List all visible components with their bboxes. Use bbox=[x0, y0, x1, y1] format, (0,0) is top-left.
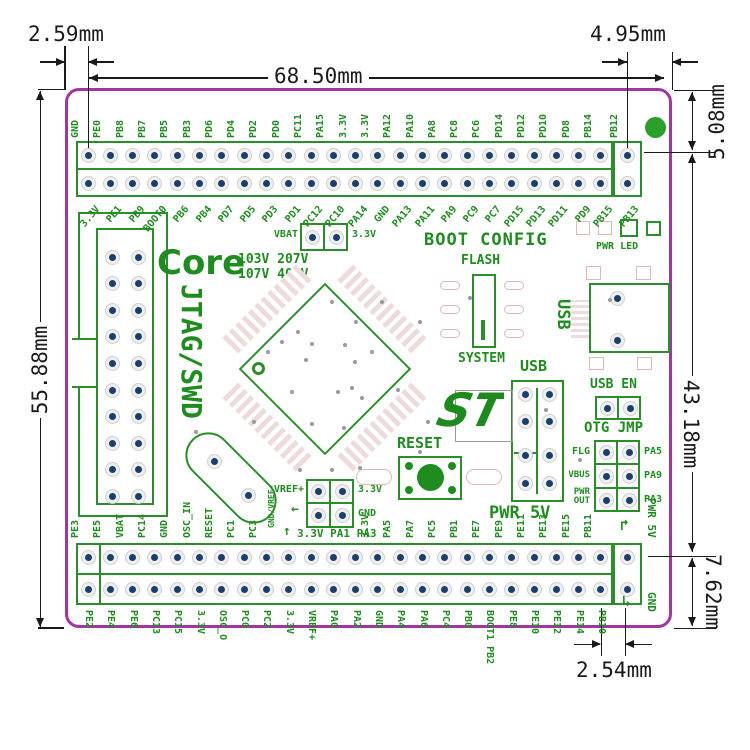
pin-label: GND bbox=[70, 90, 82, 138]
top-header-pin bbox=[437, 176, 452, 191]
pin-label: PE15 bbox=[561, 490, 573, 538]
vref-pin bbox=[311, 508, 326, 523]
bottom-header-pin bbox=[593, 582, 608, 597]
pin-label: PC13 bbox=[149, 610, 161, 666]
pin-label: PD2 bbox=[248, 90, 260, 138]
pin-label: 3.3V bbox=[283, 610, 295, 666]
otg-pin bbox=[599, 493, 614, 508]
pin-label: PB11 bbox=[583, 490, 595, 538]
bottom-header-pin bbox=[192, 582, 207, 597]
usb-header-pin bbox=[518, 414, 533, 429]
jtag-pin bbox=[131, 356, 146, 371]
arrowhead bbox=[625, 640, 634, 648]
usb-port-outline bbox=[589, 283, 670, 353]
pin-label: PC11 bbox=[293, 90, 305, 138]
pin-label: PD10 bbox=[538, 90, 550, 138]
gnd-out-label: GND bbox=[646, 592, 657, 622]
pin-label: PA10 bbox=[405, 90, 417, 138]
dim-right-gap-label: 4.95mm bbox=[590, 22, 666, 46]
top-header-pin bbox=[460, 148, 475, 163]
top-header-pin bbox=[259, 176, 274, 191]
bottom-header-pin bbox=[527, 550, 542, 565]
pin-label: PA12 bbox=[382, 90, 394, 138]
top-header-pin bbox=[482, 148, 497, 163]
usb-pad bbox=[636, 266, 651, 280]
pin-label: PB5 bbox=[159, 90, 171, 138]
arrowhead bbox=[36, 618, 44, 627]
dim-board-height-label: 55.88mm bbox=[28, 322, 50, 418]
bottom-header-pin bbox=[348, 582, 363, 597]
arrowhead bbox=[618, 58, 627, 66]
dim-header-span-label: 43.18mm bbox=[681, 376, 703, 472]
pin-label: PC6 bbox=[471, 90, 483, 138]
pin-label: PD8 bbox=[561, 90, 573, 138]
usb-header-pin bbox=[542, 414, 557, 429]
jtag-pin bbox=[131, 383, 146, 398]
pin-label: BOOT1 PB2 bbox=[483, 610, 495, 666]
dim-line bbox=[692, 558, 694, 626]
jtag-pin bbox=[105, 409, 120, 424]
bottom-header-pin bbox=[237, 582, 252, 597]
usb-header-pin bbox=[518, 387, 533, 402]
via-dot bbox=[304, 358, 308, 362]
via-dot bbox=[418, 450, 422, 454]
bottom-header-pin bbox=[125, 582, 140, 597]
usb-pad bbox=[586, 266, 601, 280]
pin-label: PA8 bbox=[427, 90, 439, 138]
otg-pin bbox=[599, 469, 614, 484]
bottom-header-midline bbox=[76, 573, 613, 575]
usb-en-pin bbox=[623, 401, 638, 416]
bottom-header-pin bbox=[620, 582, 635, 597]
top-header-pin bbox=[348, 176, 363, 191]
usb-header-pin bbox=[542, 387, 557, 402]
bottom-header-pin bbox=[393, 582, 408, 597]
top-header-pin bbox=[527, 148, 542, 163]
bottom-header-pin bbox=[527, 582, 542, 597]
top-header-pin bbox=[370, 176, 385, 191]
via-dot bbox=[194, 430, 198, 434]
usb-header-pin bbox=[518, 448, 533, 463]
bottom-header-pin bbox=[81, 582, 96, 597]
boot-flash-label: FLASH bbox=[461, 254, 500, 268]
bottom-header-pin bbox=[125, 550, 140, 565]
jtag-pin bbox=[105, 329, 120, 344]
pin-label: PE13 bbox=[538, 490, 550, 538]
jtag-pin bbox=[105, 303, 120, 318]
pin-label: PA2 bbox=[350, 610, 362, 666]
dim-top-margin-label: 5.08mm bbox=[705, 80, 727, 164]
bottom-header-pin bbox=[504, 582, 519, 597]
top-header-pin bbox=[147, 176, 162, 191]
jtag-pin bbox=[131, 462, 146, 477]
pin-label: PE9 bbox=[494, 490, 506, 538]
otg-divider bbox=[616, 440, 618, 512]
jtag-pin bbox=[105, 250, 120, 265]
via-dot bbox=[418, 320, 422, 324]
top-header-pin bbox=[81, 176, 96, 191]
bottom-header-pin bbox=[281, 550, 296, 565]
arrowhead bbox=[56, 58, 65, 66]
pin-label: PB10 bbox=[595, 610, 607, 666]
bottom-header-pin bbox=[593, 550, 608, 565]
top-header-pin bbox=[504, 176, 519, 191]
via-dot bbox=[310, 422, 314, 426]
pin-label: RESET bbox=[204, 490, 216, 538]
dim-pin-span-label: 68.50mm bbox=[268, 64, 369, 88]
st-logo-icon: ST bbox=[428, 380, 504, 442]
pwr5v-out-label: PWR 5V bbox=[646, 498, 657, 544]
top-header-pin bbox=[147, 148, 162, 163]
usb-port-pin bbox=[610, 291, 625, 306]
top-header-pin bbox=[571, 148, 586, 163]
top-header-pin bbox=[326, 148, 341, 163]
pin-label: OSC_O bbox=[216, 610, 228, 666]
arrowhead bbox=[688, 617, 696, 626]
via-dot bbox=[468, 296, 472, 300]
pin-label: PE2 bbox=[82, 610, 94, 666]
via-dot bbox=[544, 408, 548, 412]
bottom-header-pin bbox=[147, 582, 162, 597]
usb-en-label: USB EN bbox=[590, 378, 637, 392]
usb-header-pin bbox=[542, 476, 557, 491]
dim-pin-pitch-label: 2.54mm bbox=[576, 658, 652, 682]
via-dot bbox=[426, 420, 430, 424]
arrowhead bbox=[688, 543, 696, 552]
via-dot bbox=[266, 350, 270, 354]
via-dot bbox=[298, 468, 302, 472]
pin-label: PD0 bbox=[271, 90, 283, 138]
bottom-header-pin bbox=[348, 550, 363, 565]
usb-header-trace-v bbox=[536, 388, 538, 494]
ext-line bbox=[38, 627, 64, 629]
pin-label: PE4 bbox=[104, 610, 116, 666]
jtag-pin bbox=[105, 276, 120, 291]
pin-label: OSC_IN bbox=[182, 490, 194, 538]
boot-switch-mark bbox=[481, 320, 485, 340]
pin-label: PE11 bbox=[516, 490, 528, 538]
pin-label: PE0 bbox=[92, 90, 104, 138]
pin-label: PE5 bbox=[92, 490, 104, 538]
jtag-pin bbox=[131, 250, 146, 265]
arrowhead bbox=[688, 558, 696, 567]
top-header-pin bbox=[103, 176, 118, 191]
via-dot bbox=[342, 426, 346, 430]
reset-corner-pin bbox=[405, 462, 413, 470]
vbat-pin bbox=[305, 230, 320, 245]
reset-pad bbox=[356, 469, 392, 485]
reset-pad bbox=[466, 469, 502, 485]
pin-label: VREF+ bbox=[305, 610, 317, 666]
top-header-pin bbox=[549, 176, 564, 191]
pin-label: PB0 bbox=[461, 610, 473, 666]
top-header-pin bbox=[237, 176, 252, 191]
bottom-header-pin bbox=[281, 582, 296, 597]
arrowhead bbox=[688, 154, 696, 163]
via-dot bbox=[336, 390, 340, 394]
bottom-header-pin bbox=[571, 550, 586, 565]
bottom-header-pin bbox=[259, 550, 274, 565]
vref-pin bbox=[335, 484, 350, 499]
bottom-header-pin bbox=[192, 550, 207, 565]
top-header-pin bbox=[170, 176, 185, 191]
pin-label: GND bbox=[372, 610, 384, 666]
top-header-pin bbox=[437, 148, 452, 163]
via-dot bbox=[353, 360, 357, 364]
top-header-pin bbox=[370, 148, 385, 163]
via-dot bbox=[310, 342, 314, 346]
pin-label: PC2 bbox=[260, 610, 272, 666]
pin-label: 3.3V bbox=[338, 90, 350, 138]
top-header-pin bbox=[125, 148, 140, 163]
bottom-header-pin bbox=[170, 582, 185, 597]
usb-pad bbox=[589, 357, 604, 370]
top-header-pin bbox=[415, 148, 430, 163]
arrowhead bbox=[688, 92, 696, 101]
bottom-header-pin bbox=[103, 582, 118, 597]
pin-label: PC5 bbox=[427, 490, 439, 538]
arrowhead bbox=[36, 91, 44, 100]
top-header-pin bbox=[192, 148, 207, 163]
otg-pin bbox=[599, 445, 614, 460]
top-header-pin bbox=[304, 176, 319, 191]
jtag-pin bbox=[105, 436, 120, 451]
top-header-pin bbox=[192, 176, 207, 191]
top-header-pin bbox=[393, 176, 408, 191]
via-dot bbox=[350, 386, 354, 390]
otg-jmp-title: OTG JMP bbox=[584, 421, 643, 436]
usb-port-pin bbox=[610, 333, 625, 348]
via-dot bbox=[330, 300, 334, 304]
usb-header-pin bbox=[542, 448, 557, 463]
via-dot bbox=[578, 458, 582, 462]
jtag-pin bbox=[105, 489, 120, 504]
arrowhead bbox=[688, 141, 696, 150]
crystal-pin bbox=[207, 454, 222, 469]
top-header-pin bbox=[281, 148, 296, 163]
via-dot bbox=[343, 343, 347, 347]
vref-pin bbox=[311, 484, 326, 499]
pin-label: PA6 bbox=[417, 610, 429, 666]
pin-label: PB1 bbox=[449, 490, 461, 538]
vref-pin bbox=[335, 508, 350, 523]
bottom-header-pin bbox=[103, 550, 118, 565]
boot-pad bbox=[504, 329, 524, 338]
corner-arrow-icon: ↱ bbox=[620, 518, 629, 534]
top-header-pin bbox=[259, 148, 274, 163]
usb-signal-pads bbox=[571, 300, 589, 338]
otg-pin bbox=[622, 445, 637, 460]
pin-label: GND bbox=[159, 490, 171, 538]
pin-label: PB14 bbox=[583, 90, 595, 138]
via-dot bbox=[380, 300, 384, 304]
pin-label: PB8 bbox=[115, 90, 127, 138]
top-header-pin bbox=[348, 148, 363, 163]
pin-label: PE8 bbox=[506, 610, 518, 666]
pin-label: 3.3V bbox=[360, 490, 372, 538]
ext-line bbox=[625, 608, 627, 656]
usb-en-pin bbox=[600, 401, 615, 416]
bottom-header-pin bbox=[214, 550, 229, 565]
top-header-pin bbox=[281, 176, 296, 191]
dim-line bbox=[692, 154, 694, 552]
pin-label: PA4 bbox=[394, 610, 406, 666]
core-variant-1: 103V 207V bbox=[238, 253, 308, 267]
pin-label: PA0 bbox=[327, 610, 339, 666]
board-marker-dot bbox=[645, 117, 666, 138]
bottom-header-pin bbox=[482, 550, 497, 565]
bottom-header-pin bbox=[549, 550, 564, 565]
top-header-pin bbox=[170, 148, 185, 163]
top-header-pin bbox=[549, 148, 564, 163]
bottom-header-pin bbox=[415, 582, 430, 597]
pin-label: 3.3V bbox=[194, 610, 206, 666]
bottom-header-pin bbox=[460, 582, 475, 597]
bottom-header-pin bbox=[393, 550, 408, 565]
usb-port-label: USB bbox=[552, 299, 571, 341]
otg-pin bbox=[622, 469, 637, 484]
usb-header-title: USB bbox=[520, 359, 547, 375]
top-header-pin bbox=[460, 176, 475, 191]
top-header-pin bbox=[81, 148, 96, 163]
via-dot bbox=[360, 396, 364, 400]
bottom-header-pin bbox=[620, 550, 635, 565]
bottom-header-pin bbox=[304, 582, 319, 597]
pin-label: PC15 bbox=[171, 610, 183, 666]
mcu-pin1-marker bbox=[252, 362, 265, 375]
reset-plunger bbox=[417, 464, 444, 491]
pin-label: PC1 bbox=[226, 490, 238, 538]
boot-system-label: SYSTEM bbox=[458, 352, 505, 366]
top-header-pin bbox=[214, 148, 229, 163]
ext-line bbox=[38, 89, 64, 91]
vbat-pin bbox=[329, 230, 344, 245]
boot-pad bbox=[504, 305, 524, 314]
bottom-header-pin bbox=[460, 550, 475, 565]
dim-line bbox=[89, 77, 664, 79]
via-dot bbox=[354, 320, 358, 324]
reset-corner-pin bbox=[448, 462, 456, 470]
boot-pad bbox=[504, 281, 524, 290]
otg-pin bbox=[622, 493, 637, 508]
bottom-header-pin bbox=[259, 582, 274, 597]
pin-label: PC4 bbox=[439, 610, 451, 666]
pin-label: PE10 bbox=[528, 610, 540, 666]
top-header-pin bbox=[620, 148, 635, 163]
jtag-pin bbox=[131, 276, 146, 291]
up-arrow-icon: ↑ bbox=[283, 525, 291, 539]
via-dot bbox=[358, 466, 362, 470]
pin-label: PD4 bbox=[226, 90, 238, 138]
pin-label: PB7 bbox=[137, 90, 149, 138]
via-dot bbox=[296, 330, 300, 334]
boot-pad bbox=[440, 329, 460, 338]
arrowhead bbox=[672, 58, 681, 66]
usb-en-divider bbox=[617, 396, 619, 420]
jtag-pin bbox=[131, 436, 146, 451]
bottom-header-pin bbox=[326, 550, 341, 565]
top-header-pin bbox=[415, 176, 430, 191]
ext-line bbox=[64, 46, 66, 90]
pwr-led-icon bbox=[646, 221, 661, 236]
pin-label: PE6 bbox=[127, 610, 139, 666]
bottom-header-pin bbox=[214, 582, 229, 597]
vref-divider-h bbox=[306, 502, 354, 504]
jtag-pin bbox=[131, 329, 146, 344]
bottom-header-divider bbox=[99, 543, 101, 605]
via-dot bbox=[396, 388, 400, 392]
bottom-header-pin bbox=[504, 550, 519, 565]
dim-left-gap-label: 2.59mm bbox=[28, 22, 104, 46]
bottom-header-pin bbox=[415, 550, 430, 565]
pin-label: PA15 bbox=[315, 90, 327, 138]
top-header-midline bbox=[76, 168, 613, 170]
dim-bottom-margin-label: 7.62mm bbox=[703, 550, 725, 634]
pcb-dimension-diagram: JTAG/SWD Core 103V 207V 107V 407V VBAT 3… bbox=[0, 0, 750, 750]
top-header-pin bbox=[237, 148, 252, 163]
pin-label: PB3 bbox=[182, 90, 194, 138]
jtag-pin bbox=[131, 409, 146, 424]
jtag-pin bbox=[105, 356, 120, 371]
via-dot bbox=[280, 340, 284, 344]
left-arrow-icon: ← bbox=[291, 503, 299, 517]
pin-label: PD12 bbox=[516, 90, 528, 138]
bottom-header-pin bbox=[437, 550, 452, 565]
bottom-header-pin bbox=[326, 582, 341, 597]
top-header-pin bbox=[393, 148, 408, 163]
pin-label: PE14 bbox=[573, 610, 585, 666]
bottom-header-pin bbox=[237, 550, 252, 565]
bottom-header-pin bbox=[147, 550, 162, 565]
otg-row-right-pa9: PA9 bbox=[644, 471, 662, 482]
top-header-pin bbox=[125, 176, 140, 191]
crystal-pin bbox=[241, 488, 256, 503]
via-dot bbox=[290, 390, 294, 394]
otg-row-right-pa5: PA5 bbox=[644, 447, 662, 458]
pin-label: PE12 bbox=[550, 610, 562, 666]
arrowhead bbox=[655, 74, 664, 82]
ext-line bbox=[627, 52, 629, 152]
top-header-pin bbox=[527, 176, 542, 191]
via-dot bbox=[370, 350, 374, 354]
jtag-pin bbox=[105, 383, 120, 398]
pin-label: PE7 bbox=[471, 490, 483, 538]
top-header-pin bbox=[593, 148, 608, 163]
top-header-pin bbox=[214, 176, 229, 191]
bottom-header-pin bbox=[370, 550, 385, 565]
top-header-pin bbox=[326, 176, 341, 191]
pin-label: PD6 bbox=[204, 90, 216, 138]
pin-label: PA7 bbox=[405, 490, 417, 538]
pin-label: 3.3V bbox=[360, 90, 372, 138]
top-header-pin bbox=[103, 148, 118, 163]
pin-label: PE3 bbox=[70, 490, 82, 538]
top-header-pin bbox=[571, 176, 586, 191]
via-dot bbox=[252, 420, 256, 424]
svg-text:ST: ST bbox=[432, 385, 504, 438]
bottom-header-pin bbox=[370, 582, 385, 597]
usb-pad bbox=[637, 357, 652, 370]
boot-pad bbox=[440, 305, 460, 314]
top-header-pin bbox=[482, 176, 497, 191]
bottom-header-pin bbox=[304, 550, 319, 565]
top-header-pin bbox=[504, 148, 519, 163]
bottom-header-pin bbox=[81, 550, 96, 565]
jtag-pin bbox=[131, 303, 146, 318]
jtag-notch bbox=[72, 338, 98, 388]
top-header-pin bbox=[304, 148, 319, 163]
pin-label: PC0 bbox=[238, 610, 250, 666]
